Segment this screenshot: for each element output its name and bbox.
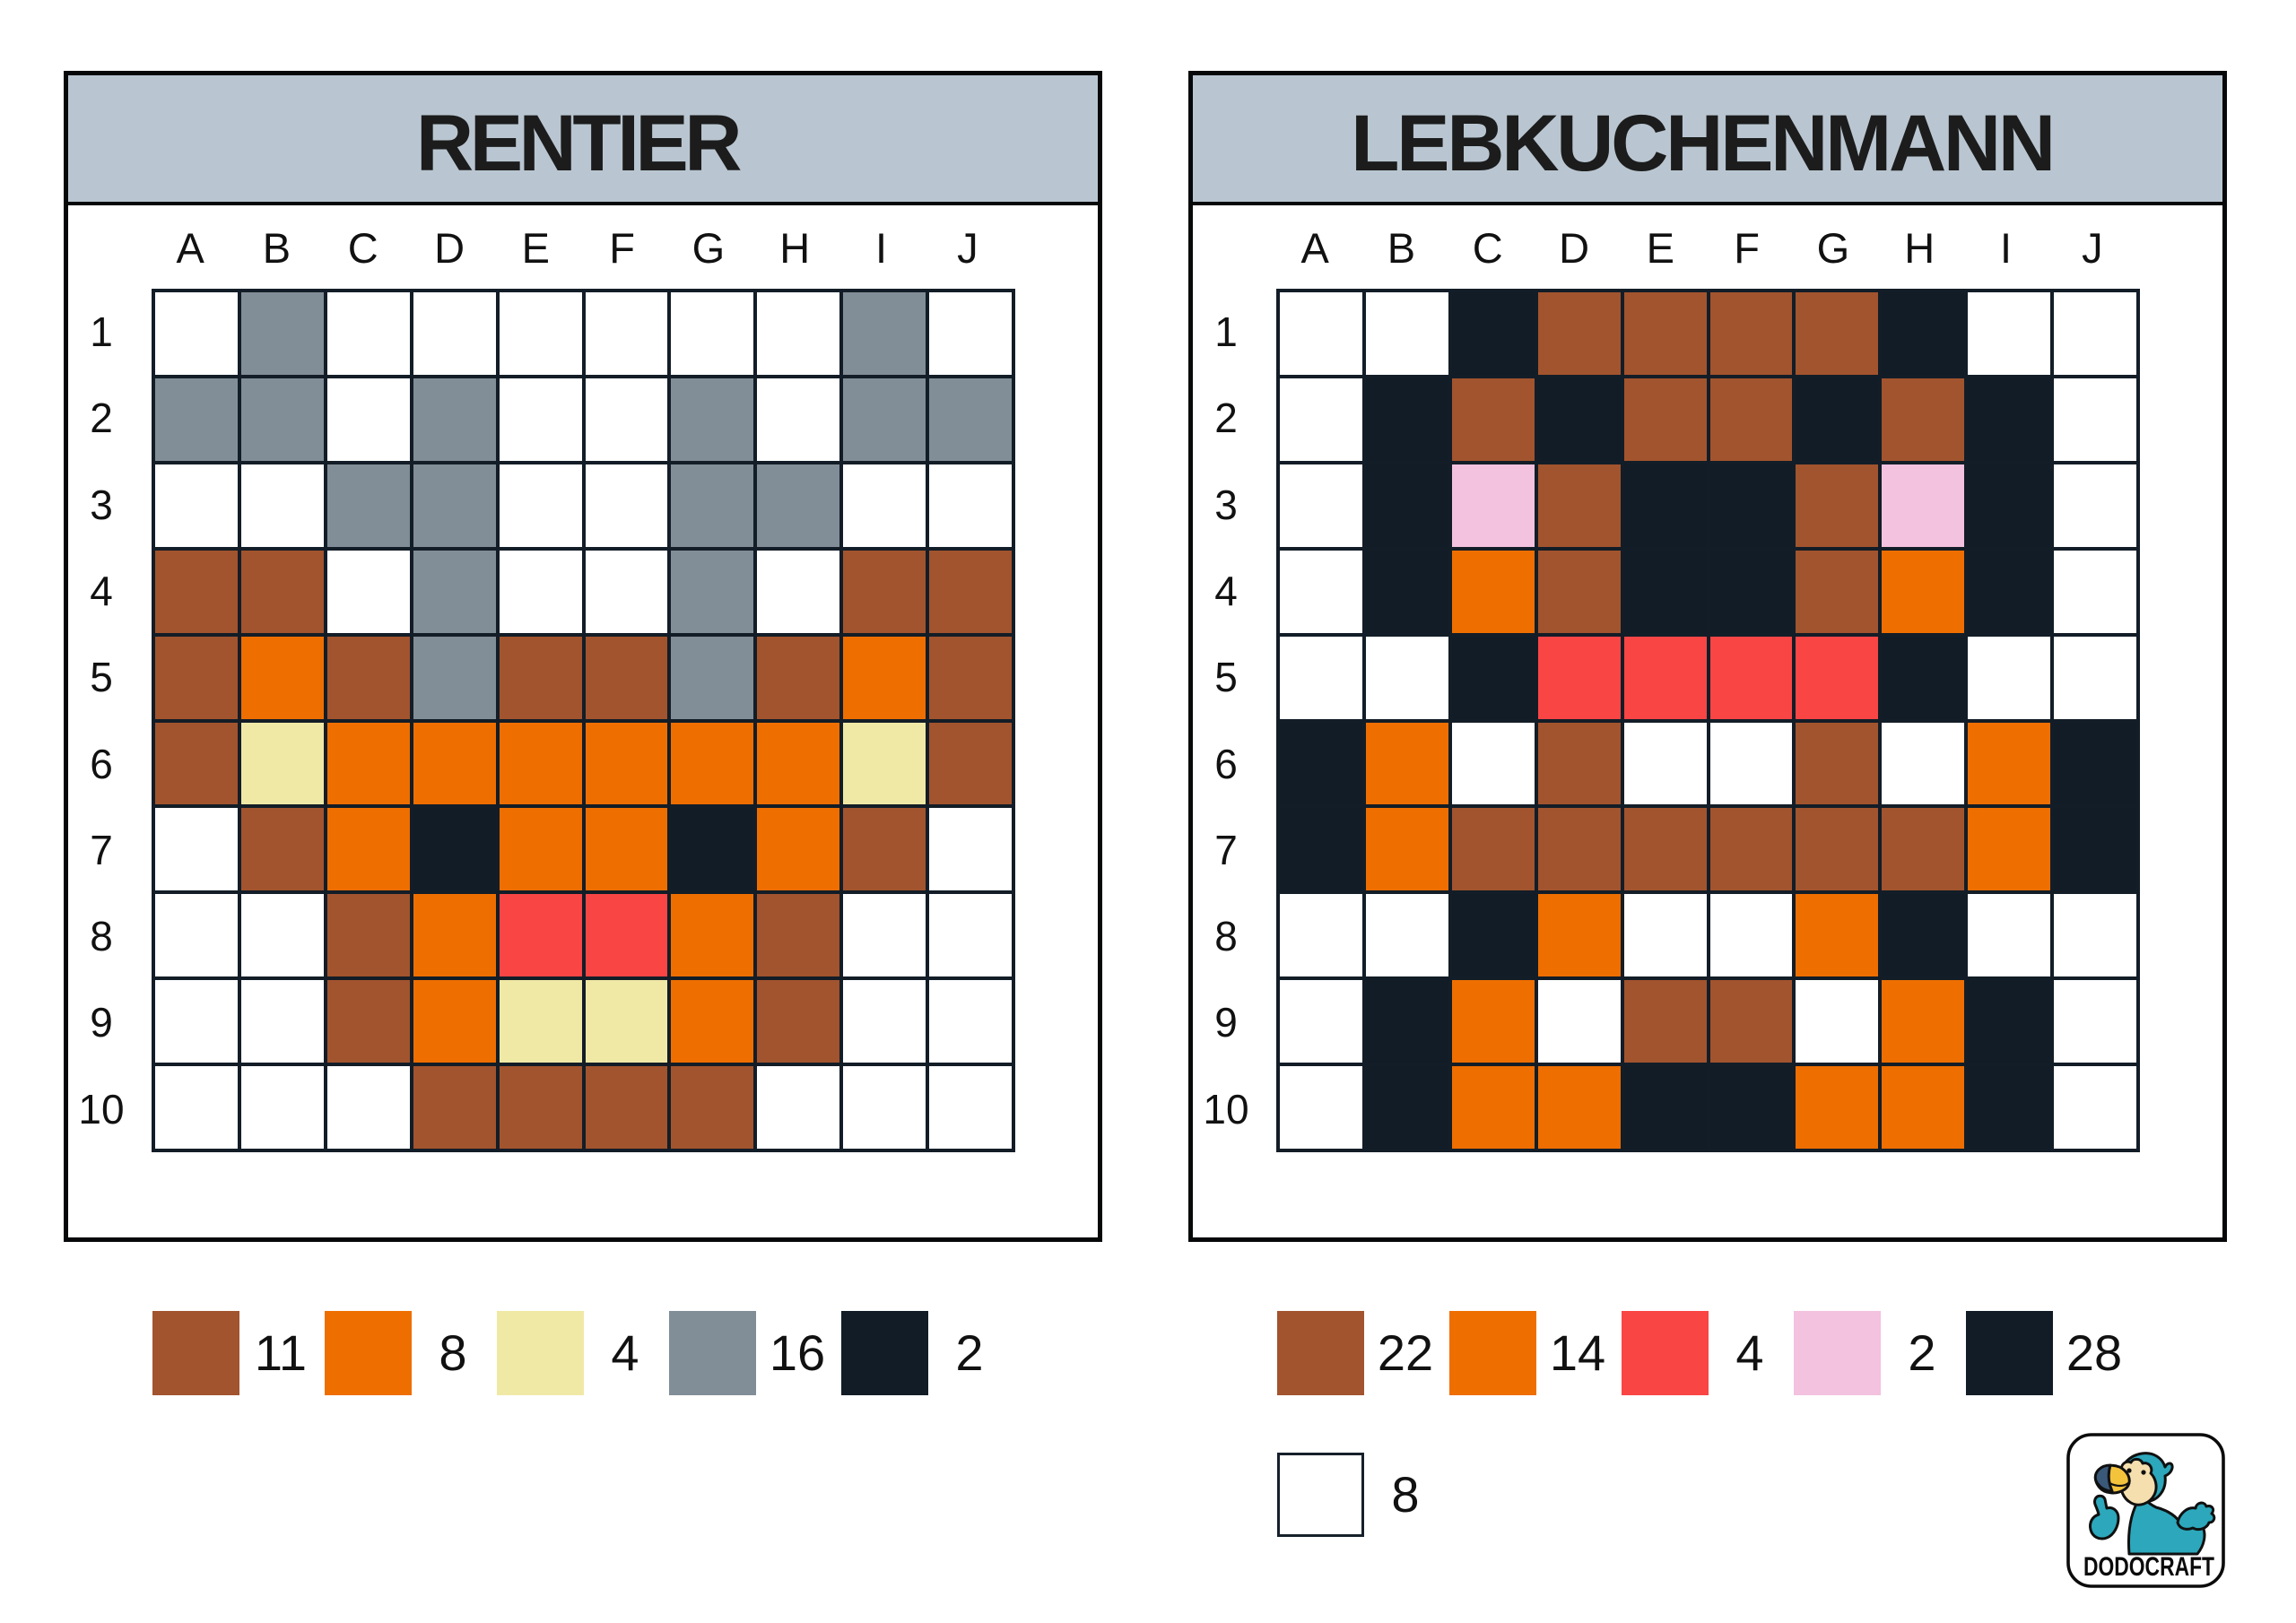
svg-text:DODOCRAFT: DODOCRAFT xyxy=(2083,1552,2214,1582)
